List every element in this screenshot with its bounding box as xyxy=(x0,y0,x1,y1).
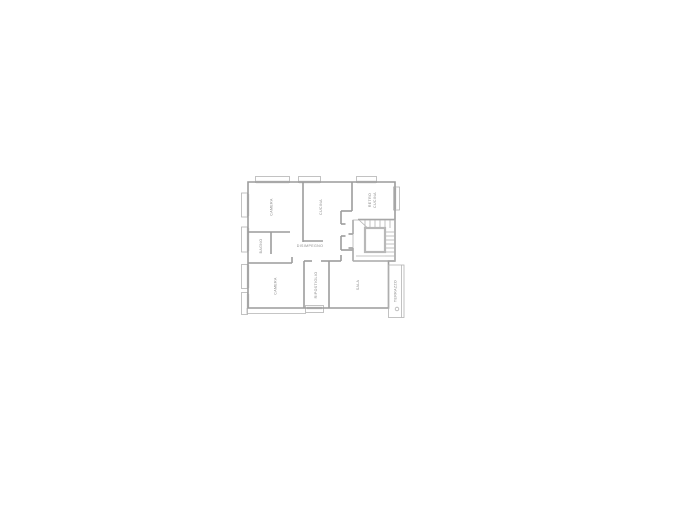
room-label-sala: SALA xyxy=(356,279,360,290)
room-label-camera-bottom: CAMERA xyxy=(274,277,278,295)
floor-plan: CAMERA CUCINA RETRO CUCINA BAGNO DISIMPE… xyxy=(0,0,692,518)
staircase xyxy=(353,220,395,261)
room-label-retro-cucina: CUCINA xyxy=(373,192,377,208)
room-label-disimpegno: DISIMPEGNO xyxy=(297,244,323,248)
window-sill xyxy=(242,193,248,217)
drain-circle xyxy=(395,307,399,311)
bottom-ledge-line xyxy=(247,308,306,314)
room-label-retro: RETRO xyxy=(368,193,372,207)
page-background: CAMERA CUCINA RETRO CUCINA BAGNO DISIMPE… xyxy=(0,0,692,518)
window-sill xyxy=(242,265,248,289)
window-sill xyxy=(242,227,248,252)
room-label-cucina: CUCINA xyxy=(319,199,323,215)
room-label-ripostiglio: RIPOSTIGLIO xyxy=(314,272,318,299)
room-label-terrazzo: TERRAZZO xyxy=(394,280,398,302)
stairwell-void xyxy=(365,228,385,252)
room-label-camera-top: CAMERA xyxy=(270,198,274,216)
room-label-bagno: BAGNO xyxy=(259,239,263,254)
